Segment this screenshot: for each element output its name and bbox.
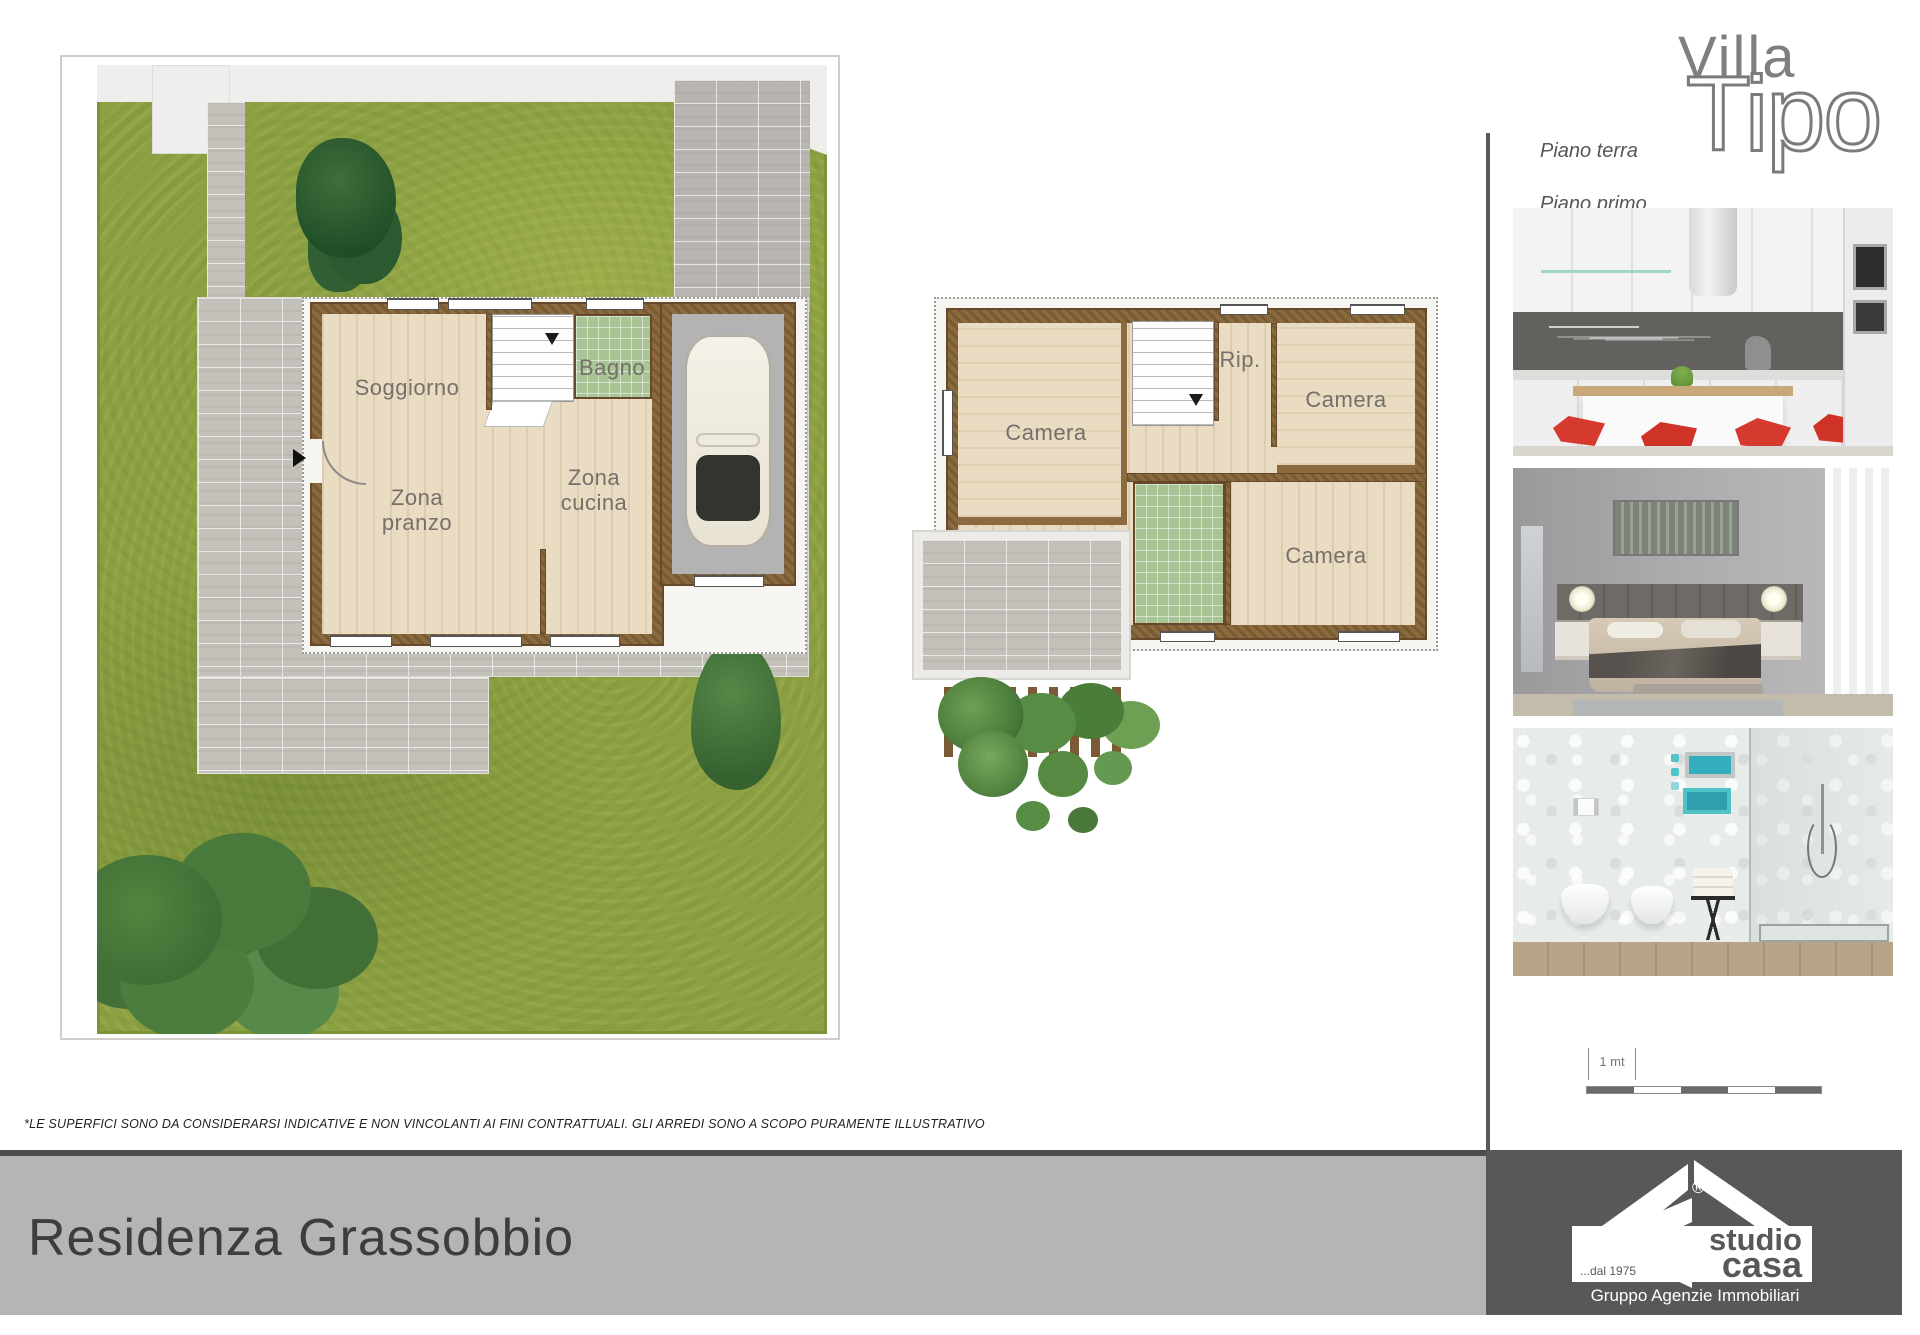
label-rip: Rip.: [1185, 347, 1295, 372]
scale-label: 1 mt: [1592, 1054, 1632, 1069]
logo-group: Gruppo Agenzie Immobiliari: [1552, 1286, 1838, 1306]
bedroom-pillow-2: [1681, 620, 1741, 638]
floor-label-terra: Piano terra: [1540, 140, 1638, 163]
logo-since: ...dal 1975: [1580, 1264, 1636, 1278]
window-n3: [586, 298, 644, 310]
kitchen-backsplash: [1513, 312, 1843, 370]
label-zona-pranzo: Zona pranzo: [342, 485, 492, 536]
project-title: Residenza Grassobbio: [28, 1208, 574, 1268]
car-glass: [696, 455, 760, 521]
bath-first: [1133, 482, 1225, 625]
car-roofline: [696, 433, 760, 447]
ff-window-n1: [1220, 304, 1268, 315]
footer-logo-box: ® studio casa ...dal 1975 Gruppo Agenzie…: [1486, 1150, 1902, 1315]
kitchen-hood: [1689, 208, 1737, 296]
label-camera-3: Camera: [1246, 543, 1406, 568]
ff-window-n2: [1350, 304, 1405, 315]
garden-grass: Soggiorno Bagno Zona pranzo Zona cucina: [97, 65, 827, 1034]
scale-tick-2: [1635, 1048, 1636, 1080]
kitchen-mixer: [1745, 336, 1771, 370]
ff-window-w1: [942, 390, 953, 456]
entry-door-marker: [293, 449, 315, 467]
kitchen-floor: [1513, 446, 1893, 456]
window-s1: [330, 635, 392, 647]
ff-window-s2: [1338, 631, 1400, 642]
kitchen-oven-1: [1853, 244, 1887, 290]
tree-top: [296, 138, 396, 258]
bathroom-photo: [1513, 728, 1893, 976]
window-n2: [448, 298, 532, 310]
bedroom-lamp-right: [1761, 586, 1787, 612]
scale-tick-1: [1588, 1048, 1589, 1080]
disclaimer: *LE SUPERFICI SONO DA CONSIDERARSI INDIC…: [24, 1117, 1124, 1131]
ground-floor-house: Soggiorno Bagno Zona pranzo Zona cucina: [302, 297, 807, 682]
label-camera-1: Camera: [966, 420, 1126, 445]
bath-flush-plate: [1573, 798, 1599, 816]
bedroom-rug: [1573, 700, 1783, 716]
sidebar-divider: [1486, 133, 1490, 1152]
wall-bath-right: [1225, 482, 1231, 625]
label-camera-2: Camera: [1266, 387, 1426, 412]
window-garage-s: [694, 575, 764, 587]
bath-stool: [1691, 896, 1735, 940]
kitchen-tall-column: [1843, 208, 1893, 456]
stairs-first: [1132, 321, 1214, 426]
wall-mid: [1127, 473, 1427, 482]
driveway: [674, 80, 810, 312]
scale-bar: [1586, 1086, 1822, 1094]
kitchen-plant: [1671, 366, 1693, 386]
bath-hearts: [1671, 754, 1679, 762]
bath-frame-2: [1683, 788, 1731, 814]
pergola: [938, 683, 1134, 833]
kitchen-utensil-rail: [1549, 326, 1639, 328]
bedroom-pillow-1: [1607, 622, 1663, 638]
bath-floor: [1513, 942, 1893, 976]
wall-stub-2: [540, 549, 546, 634]
bedroom-art: [1613, 500, 1739, 556]
terrace: [912, 530, 1131, 680]
bedroom-mirror: [1519, 524, 1545, 674]
ivy-2: [958, 731, 1028, 797]
patio: [197, 677, 489, 774]
label-bagno: Bagno: [537, 355, 687, 380]
bath-towels: [1693, 868, 1733, 896]
kitchen-shelf: [1541, 270, 1671, 273]
bedroom-lamp-left: [1569, 586, 1595, 612]
tree-large: [97, 855, 222, 985]
bath-frame-1: [1685, 752, 1735, 778]
logo-registered: ®: [1692, 1178, 1705, 1198]
bedroom-throw: [1589, 644, 1761, 678]
label-soggiorno: Soggiorno: [322, 375, 492, 400]
shower-hose: [1807, 818, 1837, 878]
footer-band: Residenza Grassobbio: [0, 1156, 1486, 1315]
site-plan: Soggiorno Bagno Zona pranzo Zona cucina: [60, 55, 840, 1040]
page: { "header": { "brand_line1": "Villa", "b…: [0, 0, 1920, 1335]
bedroom-curtain: [1825, 468, 1893, 704]
bedroom-photo: [1513, 468, 1893, 716]
kitchen-island-top: [1573, 386, 1793, 396]
bath-shower-zone: [1749, 728, 1893, 976]
bedroom-bed: [1589, 618, 1761, 692]
kitchen-oven-2: [1853, 300, 1887, 334]
window-s3: [550, 635, 620, 647]
kitchen-photo: [1513, 208, 1893, 456]
window-n1: [387, 298, 439, 310]
shower-tray: [1759, 924, 1889, 942]
car: [685, 335, 771, 547]
window-s2: [430, 635, 522, 647]
ff-window-s1: [1160, 631, 1215, 642]
first-floor-plan: Camera Rip. Camera Camera: [930, 295, 1445, 840]
brand-tipo: Tipo: [1686, 64, 1880, 165]
label-zona-cucina: Zona cucina: [514, 465, 674, 516]
